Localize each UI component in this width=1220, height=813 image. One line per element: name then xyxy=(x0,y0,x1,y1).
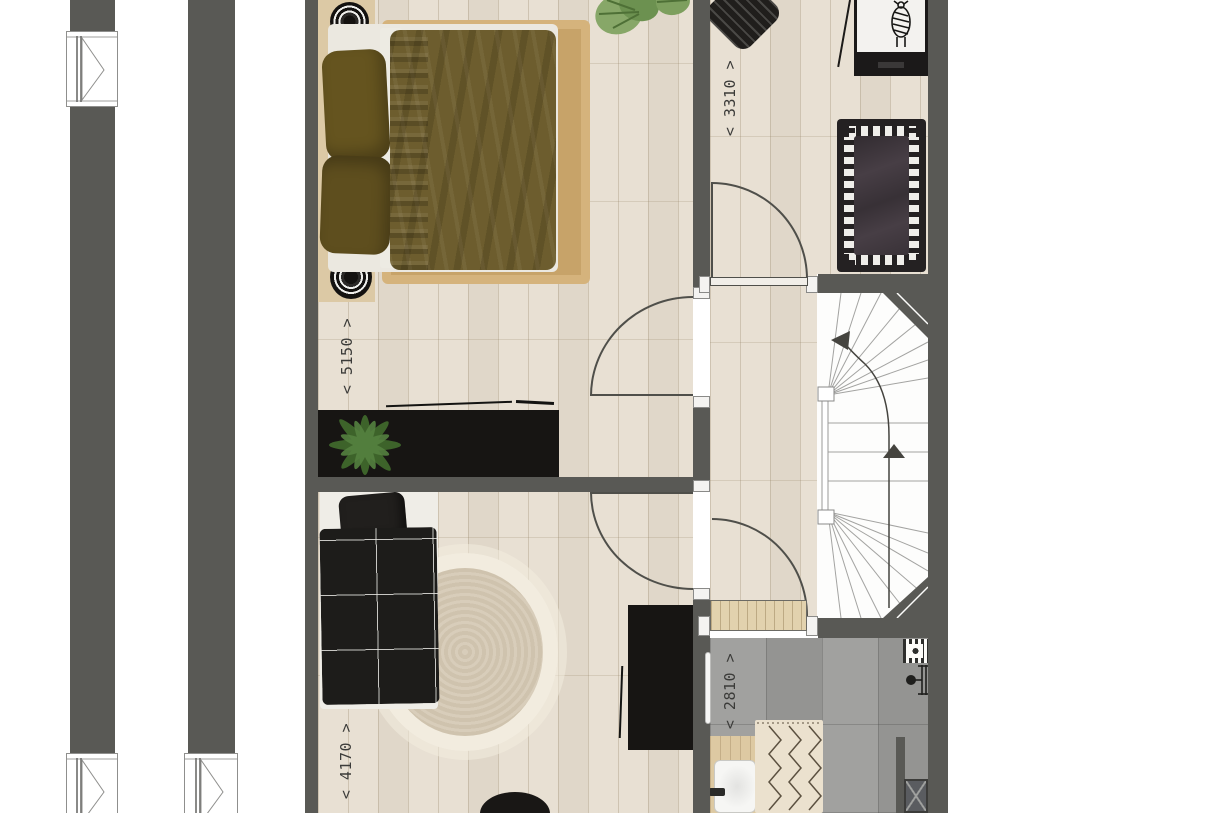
dimension-label-nursery: < 3310 > xyxy=(720,28,740,168)
zebra-print xyxy=(867,0,935,52)
crib-mattress xyxy=(854,136,909,255)
exterior-wall-left xyxy=(305,0,318,813)
interior-wall-bedrooms xyxy=(305,477,710,492)
window-symbol-icon xyxy=(66,31,118,107)
door-jamb xyxy=(698,616,710,636)
interior-wall-nursery xyxy=(818,274,928,293)
pillow xyxy=(321,48,391,161)
crib-slats-right xyxy=(908,126,919,265)
desk xyxy=(628,605,695,750)
grab-bar xyxy=(705,652,711,724)
door-leaf-master xyxy=(590,394,693,396)
shower-drain-icon xyxy=(903,639,928,663)
door-jamb xyxy=(693,480,710,492)
exterior-wall-right xyxy=(928,0,948,813)
door-leaf-nursery xyxy=(711,182,713,279)
berber-rug xyxy=(755,720,823,813)
door-jamb xyxy=(806,616,818,636)
interior-wall-bathroom xyxy=(818,618,928,638)
pillow xyxy=(319,155,392,255)
faucet xyxy=(709,788,725,796)
door-leaf-kids xyxy=(590,492,693,494)
interior-wall-center-top xyxy=(693,0,710,287)
dimension-label-kids-bedroom: < 4170 > xyxy=(336,691,356,813)
monstera-plant-icon xyxy=(593,0,697,58)
shower-fixture-icon xyxy=(903,664,929,696)
crib xyxy=(837,119,926,272)
footboard-slot xyxy=(878,62,904,68)
window-symbol-icon xyxy=(184,753,238,813)
staircase xyxy=(817,276,928,638)
neighbor-wall-left-1 xyxy=(70,0,115,813)
door-jamb xyxy=(693,588,710,600)
stair-up-arrow-icon xyxy=(883,444,905,458)
duct-shaft xyxy=(904,779,928,813)
toddler-bed xyxy=(854,0,928,76)
door-jamb xyxy=(699,276,710,293)
duvet xyxy=(390,30,556,270)
sink xyxy=(714,760,756,813)
window-symbol-icon xyxy=(66,753,118,813)
interior-wall-center-mid xyxy=(693,408,710,480)
door-closed-nursery xyxy=(710,277,808,286)
floor-plan: < 5150 > < 3310 > < 4170 > < 2810 > xyxy=(0,0,1220,813)
door-jamb xyxy=(693,396,710,408)
dimension-label-master-bedroom: < 5150 > xyxy=(337,286,357,426)
neighbor-wall-left-2 xyxy=(188,0,235,813)
dimension-label-bathroom: < 2810 > xyxy=(720,621,740,761)
duvet-crinkle xyxy=(390,30,428,270)
toddler-bed-footboard xyxy=(854,52,928,76)
plaid-duvet xyxy=(319,527,439,705)
drain-center xyxy=(908,644,923,658)
